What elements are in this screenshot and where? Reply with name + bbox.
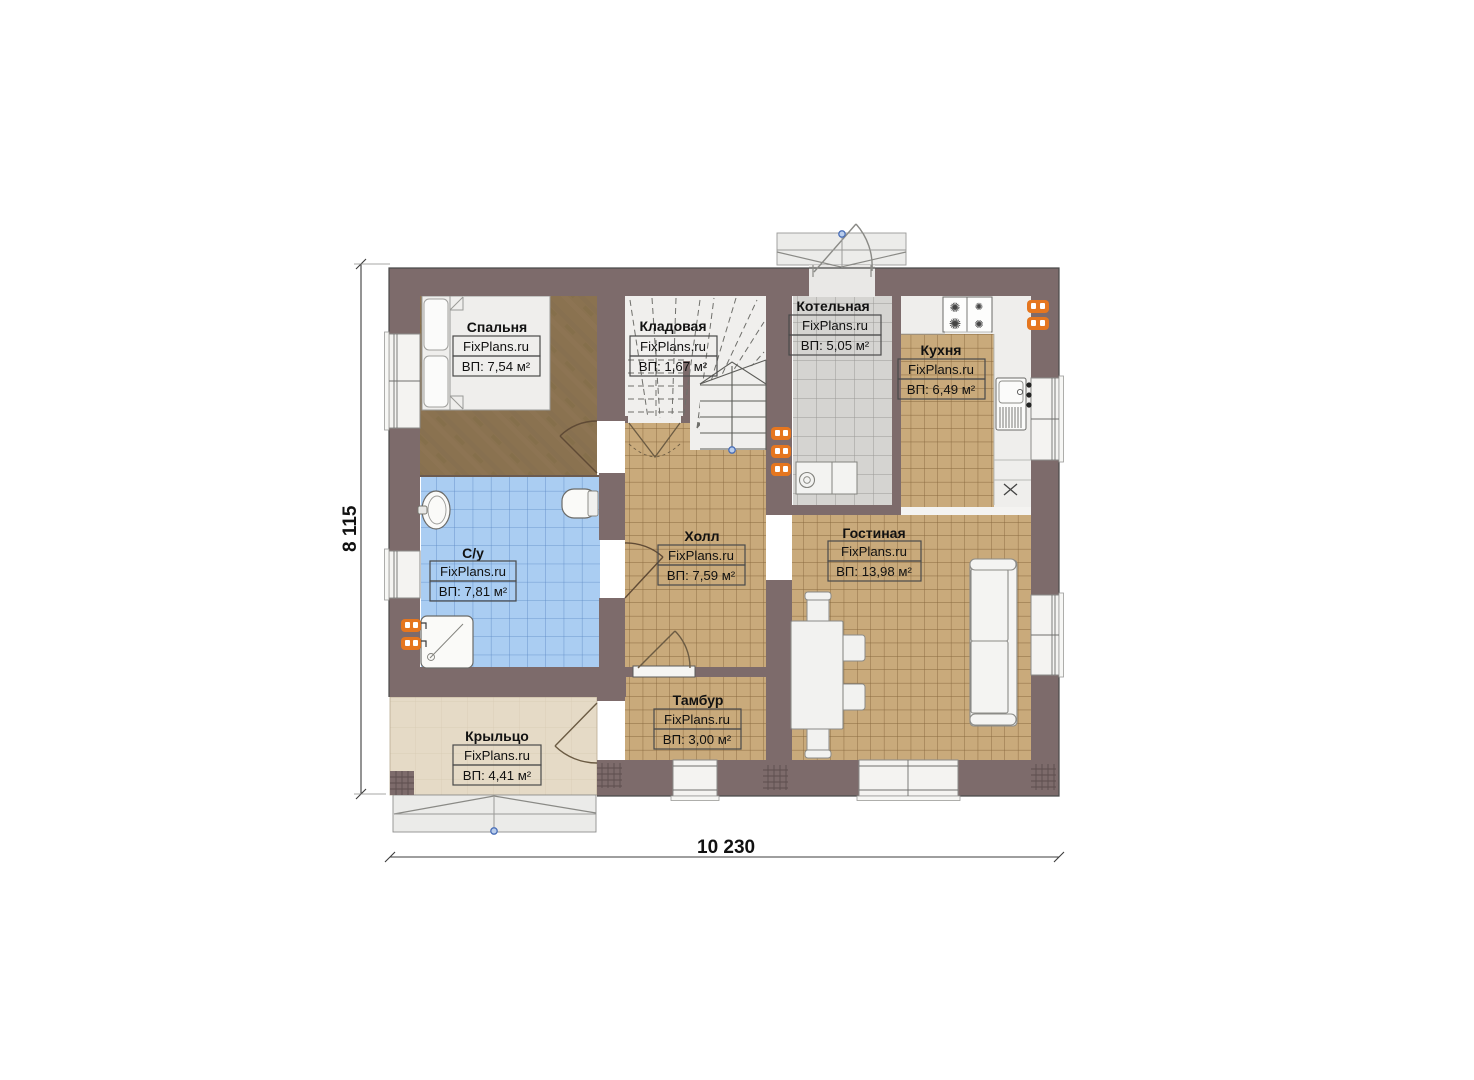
svg-text:FixPlans.ru: FixPlans.ru: [463, 339, 529, 354]
svg-text:FixPlans.ru: FixPlans.ru: [908, 362, 974, 377]
svg-text:Крыльцо: Крыльцо: [465, 728, 529, 744]
svg-text:FixPlans.ru: FixPlans.ru: [668, 548, 734, 563]
svg-text:FixPlans.ru: FixPlans.ru: [841, 544, 907, 559]
svg-text:ВП: 3,00 м²: ВП: 3,00 м²: [663, 732, 732, 747]
svg-text:✺: ✺: [974, 319, 983, 331]
svg-text:ВП: 13,98 м²: ВП: 13,98 м²: [836, 564, 912, 579]
svg-text:FixPlans.ru: FixPlans.ru: [464, 748, 530, 763]
svg-text:8 115: 8 115: [340, 505, 361, 552]
svg-text:Котельная: Котельная: [796, 298, 869, 314]
svg-text:ВП: 7,59 м²: ВП: 7,59 м²: [667, 568, 736, 583]
svg-text:ВП: 5,05 м²: ВП: 5,05 м²: [801, 338, 870, 353]
svg-text:✺: ✺: [975, 302, 983, 313]
svg-text:10 230: 10 230: [697, 837, 755, 858]
svg-text:FixPlans.ru: FixPlans.ru: [640, 339, 706, 354]
svg-text:FixPlans.ru: FixPlans.ru: [664, 712, 730, 727]
svg-text:✺: ✺: [949, 316, 962, 333]
svg-text:FixPlans.ru: FixPlans.ru: [440, 564, 506, 579]
svg-text:Спальня: Спальня: [467, 319, 527, 335]
svg-text:С/у: С/у: [462, 545, 484, 561]
svg-text:ВП: 4,41 м²: ВП: 4,41 м²: [463, 768, 532, 783]
svg-text:Гостиная: Гостиная: [842, 525, 905, 541]
svg-text:Кладовая: Кладовая: [639, 318, 706, 334]
svg-text:ВП: 1,67 м²: ВП: 1,67 м²: [639, 359, 708, 374]
svg-text:Тамбур: Тамбур: [673, 692, 724, 708]
svg-text:ВП: 7,81 м²: ВП: 7,81 м²: [439, 584, 508, 599]
svg-text:Холл: Холл: [684, 528, 719, 544]
svg-text:ВП: 6,49 м²: ВП: 6,49 м²: [907, 382, 976, 397]
svg-text:Кухня: Кухня: [921, 342, 962, 358]
svg-text:✺: ✺: [950, 300, 961, 315]
svg-text:FixPlans.ru: FixPlans.ru: [802, 318, 868, 333]
svg-text:ВП: 7,54 м²: ВП: 7,54 м²: [462, 359, 531, 374]
